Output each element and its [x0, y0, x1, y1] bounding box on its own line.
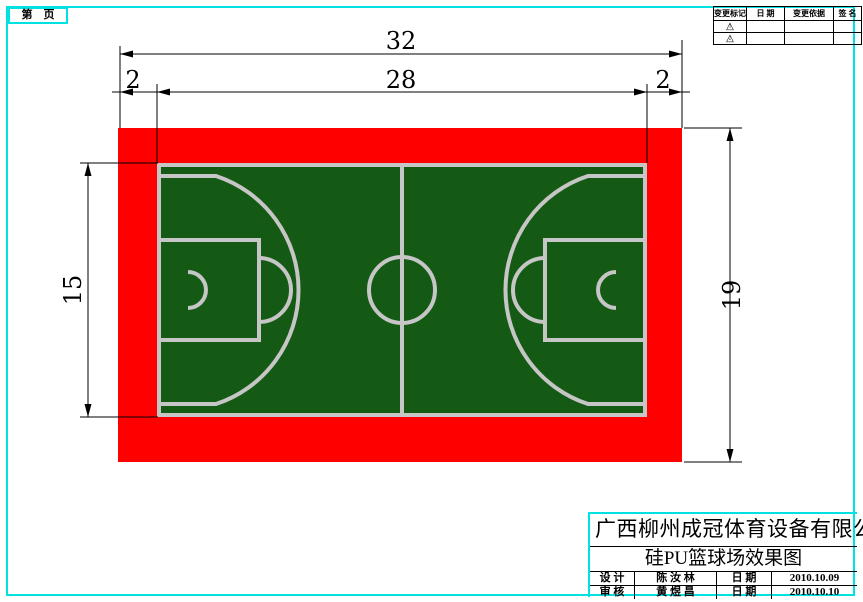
designer-date: 2010.10.09: [772, 572, 857, 585]
designer-row: 设 计 陈 汝 林 日 期 2010.10.09: [590, 572, 857, 586]
dim-arrow: [634, 89, 647, 96]
dim-text-margin-right: 2: [655, 66, 670, 94]
dim-arrow: [85, 163, 92, 176]
drawing-title: 硅PU篮球场效果图: [590, 547, 857, 572]
drawing-sheet: 第 页 变更标记 日 期 变更依据 签 名 △1 △2: [0, 0, 863, 602]
dim-text-play-height: 15: [59, 275, 87, 306]
dim-text-total-height: 19: [718, 280, 746, 311]
auditor-date: 2010.10.10: [772, 586, 857, 599]
auditor-date-label: 日 期: [717, 586, 772, 599]
dim-text-margin-left: 2: [125, 66, 140, 94]
dim-arrow: [727, 449, 734, 462]
auditor-name: 黄 煜 昌: [635, 586, 717, 599]
company-name: 广西柳州成冠体育设备有限公司: [590, 514, 857, 547]
designer-date-label: 日 期: [717, 572, 772, 585]
dim-arrow: [669, 51, 682, 58]
title-block: 广西柳州成冠体育设备有限公司 硅PU篮球场效果图 设 计 陈 汝 林 日 期 2…: [588, 512, 857, 597]
auditor-row: 审 核 黄 煜 昌 日 期 2010.10.10: [590, 586, 857, 599]
dim-arrow: [85, 404, 92, 417]
dim-arrow: [157, 89, 170, 96]
dim-arrow: [669, 89, 682, 96]
dim-text-play-width: 28: [386, 66, 417, 94]
designer-label: 设 计: [590, 572, 635, 585]
designer-name: 陈 汝 林: [635, 572, 717, 585]
dim-arrow: [727, 128, 734, 141]
dim-text-total-width: 32: [386, 27, 417, 55]
auditor-label: 审 核: [590, 586, 635, 599]
dim-arrow: [120, 51, 133, 58]
